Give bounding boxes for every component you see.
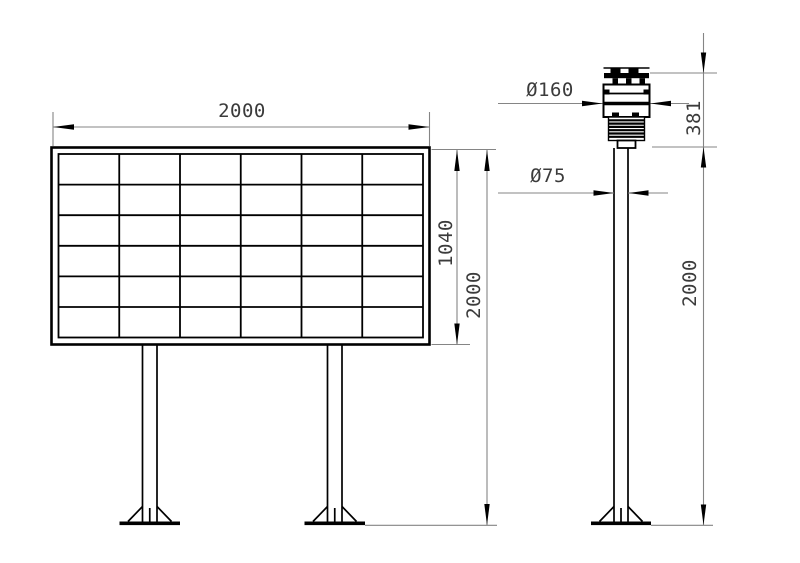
solar-cell-grid <box>59 154 424 338</box>
board-total-height-label: 2000 <box>463 271 485 319</box>
pole-height-label: 2000 <box>679 259 701 307</box>
board-legs <box>143 345 343 522</box>
pole-foot <box>591 507 651 526</box>
dim-pole-diameter <box>498 190 668 195</box>
pole-diameter-label: Ø75 <box>530 165 566 187</box>
sensor-height-label: 381 <box>683 100 705 136</box>
board-width-label: 2000 <box>218 100 266 122</box>
dim-board-total-height <box>484 150 489 525</box>
weather-sensor <box>604 68 650 148</box>
panel-height-label: 1040 <box>435 219 457 267</box>
technical-drawing: 2000 1040 2000 Ø160 Ø75 381 2000 <box>0 0 800 563</box>
sensor-diameter-label: Ø160 <box>526 79 574 101</box>
dim-sensor-diameter <box>498 101 689 106</box>
sensor-pole <box>614 148 628 522</box>
